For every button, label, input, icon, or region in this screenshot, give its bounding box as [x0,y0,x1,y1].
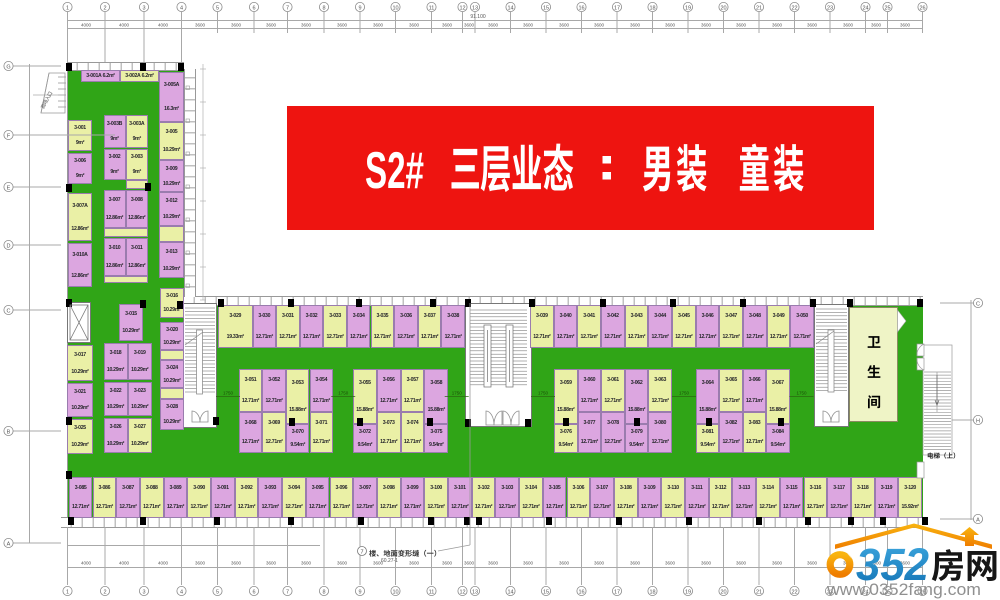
svg-text:www.0352fang.com: www.0352fang.com [826,581,981,599]
svg-text:17: 17 [614,589,620,595]
svg-text:22: 22 [791,5,797,11]
svg-text:25: 25 [884,5,890,11]
svg-text:24: 24 [862,5,868,11]
svg-text:3600: 3600 [559,23,570,28]
svg-text:4000: 4000 [81,23,92,28]
svg-text:6: 6 [252,589,255,595]
svg-text:19: 19 [685,5,691,11]
svg-text:3600: 3600 [488,561,499,566]
svg-text:4000: 4000 [119,561,130,566]
svg-text:4000: 4000 [158,23,169,28]
svg-text:11: 11 [429,589,435,595]
svg-text:4: 4 [180,5,183,11]
svg-text:3600: 3600 [701,561,712,566]
svg-text:7: 7 [360,550,363,556]
svg-text:4000: 4000 [119,23,130,28]
svg-text:3600: 3600 [900,23,911,28]
svg-text:5: 5 [216,5,219,11]
svg-text:3600: 3600 [409,561,420,566]
svg-text:10: 10 [392,589,398,595]
svg-text:12: 12 [459,589,465,595]
svg-text:3600: 3600 [266,23,277,28]
svg-text:3600: 3600 [231,23,242,28]
svg-text:11: 11 [429,5,435,11]
svg-text:21: 21 [756,5,762,11]
svg-text:2: 2 [103,589,106,595]
svg-text:A: A [976,517,980,523]
svg-text:S2#: S2# [365,142,424,200]
svg-text:C: C [7,308,11,314]
svg-text:23: 23 [827,5,833,11]
svg-text:1750: 1750 [796,391,807,396]
svg-text:4000: 4000 [81,561,92,566]
svg-text:7: 7 [286,5,289,11]
svg-text:12: 12 [459,5,465,11]
svg-text:G: G [6,64,10,70]
svg-text:1750: 1750 [223,391,234,396]
svg-text:3600: 3600 [442,23,453,28]
svg-text:3600: 3600 [337,23,348,28]
svg-text:3600: 3600 [871,23,882,28]
svg-text:26: 26 [919,5,925,11]
svg-text:D: D [7,243,11,249]
svg-text:3: 3 [142,5,145,11]
svg-text:18: 18 [649,589,655,595]
svg-text:5: 5 [216,589,219,595]
svg-text:3600: 3600 [373,23,384,28]
svg-text:3600: 3600 [231,561,242,566]
svg-text:3600: 3600 [266,561,277,566]
svg-text:3600: 3600 [807,561,818,566]
svg-text:3600: 3600 [337,561,348,566]
svg-text:3600: 3600 [195,561,206,566]
svg-text:3600: 3600 [843,23,854,28]
svg-text:16: 16 [578,5,584,11]
svg-text:91.100: 91.100 [470,14,486,20]
svg-text:3600: 3600 [594,23,605,28]
svg-text:3600: 3600 [736,561,747,566]
svg-text:3600: 3600 [409,23,420,28]
svg-text:22: 22 [791,589,797,595]
svg-text:14: 14 [507,589,513,595]
svg-text:9: 9 [358,5,361,11]
svg-text:3600: 3600 [195,23,206,28]
svg-text:1: 1 [66,5,69,11]
svg-text:1750: 1750 [679,391,690,396]
svg-text:4: 4 [180,589,183,595]
svg-text:A: A [7,541,11,547]
svg-text:3600: 3600 [772,23,783,28]
svg-text:3600: 3600 [701,23,712,28]
svg-text:1: 1 [66,589,69,595]
svg-text:2: 2 [103,5,106,11]
svg-text:8: 8 [322,589,325,595]
svg-text:3600: 3600 [523,561,534,566]
svg-text:9: 9 [358,589,361,595]
svg-text:19: 19 [685,589,691,595]
svg-text:20: 20 [720,5,726,11]
svg-text:3600: 3600 [301,23,312,28]
svg-text:3600: 3600 [488,23,499,28]
svg-text:C: C [976,301,980,307]
svg-text:E: E [7,185,11,191]
svg-text:4000: 4000 [158,561,169,566]
svg-text:21: 21 [756,589,762,595]
svg-text:3600: 3600 [665,561,676,566]
svg-text:13: 13 [472,589,478,595]
svg-text:H: H [976,418,980,424]
svg-text:B: B [7,429,11,435]
svg-text:7: 7 [286,589,289,595]
svg-text:6: 6 [252,5,255,11]
svg-text:17: 17 [614,5,620,11]
svg-text:3600: 3600 [630,23,641,28]
svg-text:1750: 1750 [338,391,349,396]
svg-text:10: 10 [392,5,398,11]
svg-text:13: 13 [472,5,478,11]
svg-text:3600: 3600 [736,23,747,28]
svg-text:1750: 1750 [452,391,463,396]
svg-text:15: 15 [543,589,549,595]
svg-text:3600: 3600 [464,23,475,28]
svg-text:3600: 3600 [559,561,570,566]
svg-text:8: 8 [322,5,325,11]
svg-text:3600: 3600 [630,561,641,566]
svg-text:3600: 3600 [464,561,475,566]
svg-text:3600: 3600 [594,561,605,566]
svg-text:3600: 3600 [442,561,453,566]
svg-text:16: 16 [578,589,584,595]
svg-text:3600: 3600 [665,23,676,28]
svg-text:15: 15 [543,5,549,11]
svg-text:3600: 3600 [523,23,534,28]
svg-text:14: 14 [507,5,513,11]
svg-text:60.27-1: 60.27-1 [381,558,398,564]
svg-text:3600: 3600 [301,561,312,566]
svg-text:18: 18 [649,5,655,11]
svg-text:3: 3 [142,589,145,595]
svg-text:3600: 3600 [772,561,783,566]
svg-text:3600: 3600 [807,23,818,28]
svg-text:1750: 1750 [538,391,549,396]
svg-text:20: 20 [720,589,726,595]
